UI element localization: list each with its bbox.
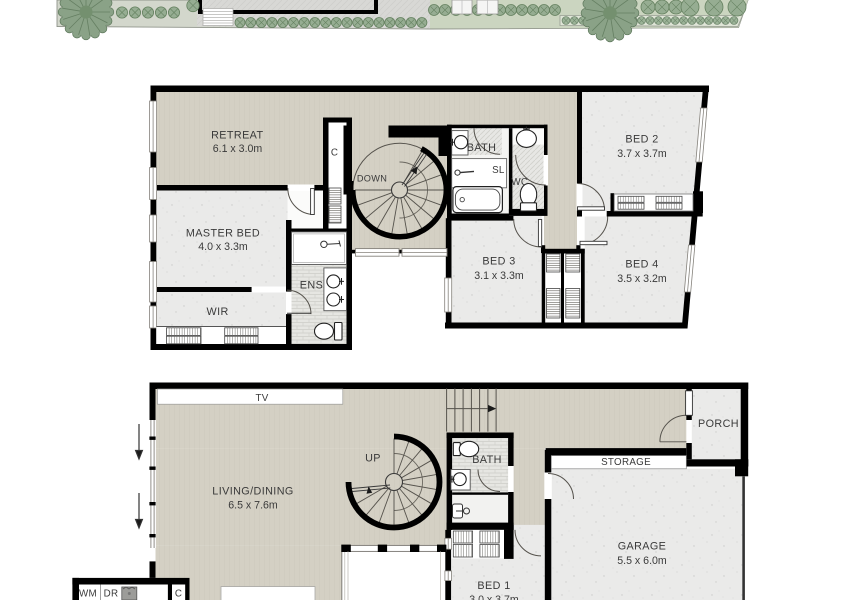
svg-text:6.1 x 3.0m: 6.1 x 3.0m	[213, 143, 263, 155]
svg-text:ENS: ENS	[300, 279, 323, 291]
svg-text:PORCH: PORCH	[698, 418, 739, 430]
svg-text:DR: DR	[104, 589, 119, 600]
svg-text:5.5 x 6.0m: 5.5 x 6.0m	[617, 555, 667, 567]
svg-text:3.0 x 3.7m: 3.0 x 3.7m	[469, 594, 519, 600]
svg-text:BED 1: BED 1	[477, 580, 510, 592]
svg-text:MASTER BED: MASTER BED	[186, 228, 260, 240]
svg-text:TV: TV	[255, 393, 268, 404]
svg-text:BATH: BATH	[472, 454, 502, 466]
svg-text:3.5 x 3.2m: 3.5 x 3.2m	[617, 273, 667, 285]
svg-text:SL: SL	[492, 165, 505, 176]
svg-text:3.1 x 3.3m: 3.1 x 3.3m	[474, 270, 524, 282]
svg-text:6.5 x 7.6m: 6.5 x 7.6m	[228, 500, 278, 512]
svg-text:LIVING/DINING: LIVING/DINING	[212, 486, 293, 498]
svg-text:4.0 x 3.3m: 4.0 x 3.3m	[198, 241, 248, 253]
svg-text:GARAGE: GARAGE	[618, 541, 667, 553]
svg-text:C: C	[331, 148, 338, 159]
svg-text:BED 3: BED 3	[482, 256, 515, 268]
svg-text:3.7 x 3.7m: 3.7 x 3.7m	[617, 148, 667, 160]
svg-text:WC: WC	[511, 177, 528, 188]
svg-text:BED 4: BED 4	[625, 259, 658, 271]
svg-text:DOWN: DOWN	[357, 174, 387, 184]
svg-text:BATH: BATH	[467, 142, 497, 154]
svg-text:UP: UP	[365, 453, 381, 465]
svg-text:RETREAT: RETREAT	[211, 129, 263, 141]
svg-text:C: C	[175, 589, 182, 600]
svg-text:BED 2: BED 2	[625, 134, 658, 146]
svg-text:WIR: WIR	[207, 306, 229, 318]
svg-text:WM: WM	[79, 589, 97, 600]
svg-text:STORAGE: STORAGE	[601, 457, 651, 468]
